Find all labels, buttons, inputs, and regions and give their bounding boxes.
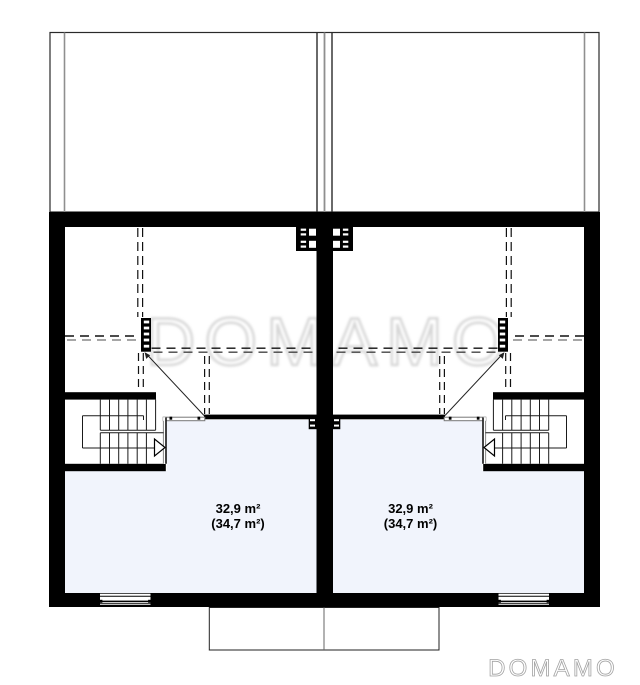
svg-text:32,9 m²: 32,9 m² — [388, 501, 433, 516]
svg-text:DOMAMO: DOMAMO — [488, 655, 618, 682]
svg-text:32,9 m²: 32,9 m² — [216, 501, 261, 516]
svg-text:(34,7 m²): (34,7 m²) — [211, 516, 264, 531]
svg-text:(34,7 m²): (34,7 m²) — [384, 516, 437, 531]
